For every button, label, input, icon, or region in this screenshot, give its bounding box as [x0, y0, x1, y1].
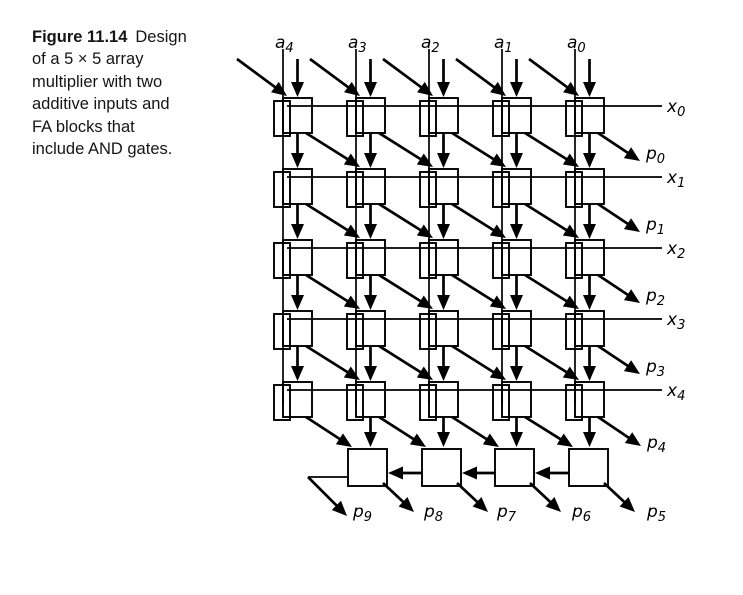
arrow-p5: [604, 483, 635, 512]
label-sub: 1: [504, 41, 512, 56]
label-sub: 4: [677, 389, 685, 404]
adder-cell-0: [348, 449, 387, 486]
arrow-head: [417, 367, 433, 380]
arrow-head: [490, 296, 506, 309]
label-x1: x1: [666, 168, 685, 191]
fa-cell-x0-a4: [274, 98, 312, 136]
down-arrow-x1-a2: [437, 204, 450, 239]
caption-line-6: include AND gates.: [32, 138, 228, 160]
down-arrow-x4-a2: [437, 417, 450, 447]
fa-cell-x4-a0: [566, 382, 604, 420]
arrow-shaft: [379, 346, 424, 374]
fa-box: [356, 169, 385, 204]
arrow-head: [563, 82, 579, 96]
arrow-p2: [598, 275, 640, 303]
top-diagonal-input-col-a1: [456, 59, 506, 96]
arrow-shaft: [379, 417, 417, 441]
down-arrow-x4-a3: [364, 417, 377, 447]
top-diagonal-input-col-a4: [237, 59, 287, 96]
fa-cell-x0-a3: [347, 98, 385, 136]
label-sub: 2: [677, 247, 685, 262]
arrow-shaft: [452, 417, 490, 441]
arrow-head: [583, 224, 596, 239]
arrow-shaft: [452, 346, 497, 374]
label-x4: x4: [666, 381, 685, 404]
fa-box: [575, 98, 604, 133]
label-sub: 3: [358, 41, 366, 56]
down-arrow-x3-a2: [437, 346, 450, 381]
down-arrow-x2-a4: [291, 275, 304, 310]
label-a2: a2: [421, 33, 440, 56]
arrow-shaft: [308, 477, 339, 508]
arrow-head: [437, 432, 450, 447]
down-arrow-x1-a1: [510, 204, 523, 239]
label-base: a: [421, 33, 431, 53]
arrow-head: [417, 225, 433, 238]
fa-cell-x0-a2: [420, 98, 458, 136]
label-p6: p6: [571, 502, 591, 525]
diag-arrow-x4-a3: [379, 417, 426, 447]
diag-arrow-x2-a1: [525, 275, 579, 309]
fa-box: [502, 169, 531, 204]
diag-arrow-x0-a2: [452, 133, 506, 167]
label-sub: 0: [577, 41, 585, 56]
arrow-shaft: [379, 133, 424, 161]
label-base: p: [646, 502, 658, 522]
arrow-head: [364, 295, 377, 310]
fa-cell-x3-a3: [347, 311, 385, 349]
arrow-head: [583, 366, 596, 381]
arrow-head: [563, 154, 579, 167]
fa-cell-x0-a1: [493, 98, 531, 136]
arrow-shaft: [310, 59, 351, 89]
arrow-head: [344, 82, 360, 96]
arrow-head: [344, 154, 360, 167]
fa-cell-x2-a0: [566, 240, 604, 278]
arrow-shaft: [525, 275, 570, 303]
fa-cell-x0-a0: [566, 98, 604, 136]
fa-cell-x1-a0: [566, 169, 604, 207]
arrow-shaft: [383, 483, 406, 504]
fa-cell-x4-a4: [274, 382, 312, 420]
arrow-shaft: [306, 275, 351, 303]
arrow-head: [336, 433, 352, 447]
arrow-shaft: [598, 133, 631, 155]
arrow-shaft: [457, 483, 480, 504]
diag-arrow-x3-a4: [306, 346, 360, 380]
arrow-shaft: [525, 346, 570, 374]
arrow-head: [510, 153, 523, 168]
diag-arrow-x3-a1: [525, 346, 579, 380]
fa-box: [429, 311, 458, 346]
arrow-head: [344, 225, 360, 238]
label-p2: p2: [645, 286, 665, 309]
diag-arrow-x1-a4: [306, 204, 360, 238]
arrow-head: [557, 434, 573, 447]
diag-arrow-x4-a2: [452, 417, 499, 447]
arrow-head: [490, 82, 506, 96]
fa-box: [283, 240, 312, 275]
arrow-head: [410, 433, 426, 447]
adder-cell-2: [495, 449, 534, 486]
down-arrow-x1-a0: [583, 204, 596, 239]
label-sub: 4: [658, 441, 666, 456]
arrow-head: [417, 154, 433, 167]
down-arrow-x1-a3: [364, 204, 377, 239]
top-vertical-input-col-a1: [510, 59, 523, 97]
arrow-head: [483, 433, 499, 447]
arrow-head: [563, 367, 579, 380]
label-p1: p1: [645, 215, 665, 238]
diag-arrow-x3-a3: [379, 346, 433, 380]
diag-arrow-x4-a1: [525, 417, 573, 447]
arrow-shaft: [452, 275, 497, 303]
arrow-shaft: [306, 346, 351, 374]
diag-arrow-x0-a1: [525, 133, 579, 167]
arrow-head: [624, 360, 640, 374]
label-x2: x2: [666, 239, 685, 262]
diagram-geometry: [237, 49, 662, 516]
diag-arrow-x0-a4: [306, 133, 360, 167]
fa-box: [502, 382, 531, 417]
fa-cell-x4-a1: [493, 382, 531, 420]
arrow-shaft: [598, 417, 632, 440]
caption-figure-number: Figure 11.14: [32, 28, 127, 46]
arrow-head: [490, 225, 506, 238]
arrow-shaft: [306, 133, 351, 161]
arrow-head: [291, 224, 304, 239]
down-arrow-x0-a2: [437, 133, 450, 168]
label-p0: p0: [645, 144, 665, 167]
top-diagonal-input-col-a0: [529, 59, 579, 96]
arrow-head: [490, 367, 506, 380]
arrow-head: [490, 154, 506, 167]
arrow-head: [344, 296, 360, 309]
figure-11-14: a4 a3 a2 a1 a0 x0 x1 x2 x3 x4 p0 p1 p2 p…: [0, 0, 743, 595]
label-base: p: [645, 357, 657, 377]
arrow-shaft: [529, 59, 570, 89]
diag-arrow-x0-a3: [379, 133, 433, 167]
arrow-head: [510, 224, 523, 239]
arrow-head: [291, 82, 304, 97]
down-arrow-x0-a4: [291, 133, 304, 168]
arrow-shaft: [452, 204, 497, 232]
label-sub: 2: [657, 294, 665, 309]
arrow-shaft: [379, 204, 424, 232]
arrow-head: [364, 82, 377, 97]
label-sub: 3: [657, 365, 665, 380]
label-base: p: [646, 433, 658, 453]
label-p4: p4: [646, 433, 666, 456]
diag-arrow-x1-a3: [379, 204, 433, 238]
arrow-head: [583, 432, 596, 447]
label-base: p: [645, 286, 657, 306]
arrow-shaft: [525, 204, 570, 232]
down-arrow-x2-a1: [510, 275, 523, 310]
arrow-p4: [598, 417, 641, 446]
label-base: p: [496, 502, 508, 522]
figure-caption: Figure 11.14Design of a 5 × 5 array mult…: [32, 26, 228, 160]
fa-box: [356, 240, 385, 275]
fa-box: [429, 169, 458, 204]
arrow-shaft: [598, 275, 631, 297]
arrow-p9: [308, 477, 347, 516]
arrow-head: [563, 225, 579, 238]
fa-box: [575, 382, 604, 417]
arrow-shaft: [604, 483, 627, 504]
label-a3: a3: [348, 33, 367, 56]
adder-carry-arrow-1: [388, 467, 422, 480]
fa-box: [429, 98, 458, 133]
label-a1: a1: [494, 33, 513, 56]
arrow-head: [625, 432, 641, 446]
label-x3: x3: [666, 310, 685, 333]
label-base: p: [645, 144, 657, 164]
top-vertical-input-col-a3: [364, 59, 377, 97]
label-base: a: [567, 33, 577, 53]
fa-box: [502, 98, 531, 133]
top-vertical-input-col-a0: [583, 59, 596, 97]
caption-line-5: FA blocks that: [32, 116, 228, 138]
arrow-shaft: [598, 204, 631, 226]
arrow-shaft: [452, 133, 497, 161]
fa-box: [283, 382, 312, 417]
arrow-head: [364, 432, 377, 447]
down-arrow-x2-a3: [364, 275, 377, 310]
fa-box: [283, 311, 312, 346]
caption-text-start: Design: [135, 28, 186, 46]
arrow-head: [510, 432, 523, 447]
arrow-head: [364, 153, 377, 168]
arrow-shaft: [306, 417, 343, 441]
fa-box: [429, 240, 458, 275]
label-sub: 3: [677, 318, 685, 333]
adder-carry-arrow-2: [462, 467, 495, 480]
down-arrow-x4-a0: [583, 417, 596, 447]
label-a0: a0: [567, 33, 586, 56]
top-diagonal-input-col-a3: [310, 59, 360, 96]
label-sub: 4: [285, 41, 293, 56]
label-sub: 8: [435, 510, 443, 525]
fa-box: [575, 240, 604, 275]
label-base: p: [352, 502, 364, 522]
label-p8: p8: [423, 502, 443, 525]
arrow-head: [364, 366, 377, 381]
caption-line-4: additive inputs and: [32, 93, 228, 115]
arrow-head: [291, 153, 304, 168]
down-arrow-x2-a2: [437, 275, 450, 310]
fa-cell-x1-a3: [347, 169, 385, 207]
fa-cell-x3-a0: [566, 311, 604, 349]
top-vertical-input-col-a2: [437, 59, 450, 97]
arrow-head: [437, 153, 450, 168]
label-a4: a4: [275, 33, 294, 56]
top-vertical-input-col-a4: [291, 59, 304, 97]
arrow-p1: [598, 204, 640, 232]
arrow-head: [291, 366, 304, 381]
arrow-head: [583, 82, 596, 97]
arrow-shaft: [383, 59, 424, 89]
arrow-head: [271, 82, 287, 96]
adder-cell-3: [569, 449, 608, 486]
diag-arrow-x2-a3: [379, 275, 433, 309]
label-base: p: [645, 215, 657, 235]
down-arrow-x3-a0: [583, 346, 596, 381]
down-arrow-x1-a4: [291, 204, 304, 239]
arrow-head: [510, 295, 523, 310]
arrow-head: [624, 289, 640, 303]
adder-carry-arrow-3: [535, 467, 569, 480]
arrow-head: [462, 467, 477, 480]
arrow-head: [364, 224, 377, 239]
fa-cell-x1-a2: [420, 169, 458, 207]
label-p7: p7: [496, 502, 517, 525]
label-x0: x0: [666, 97, 685, 120]
top-diagonal-input-col-a2: [383, 59, 433, 96]
arrow-head: [583, 153, 596, 168]
label-sub: 1: [677, 176, 685, 191]
fa-box: [575, 169, 604, 204]
arrow-shaft: [379, 275, 424, 303]
diag-arrow-x1-a2: [452, 204, 506, 238]
arrow-head: [417, 82, 433, 96]
caption-line-2: of a 5 × 5 array: [32, 48, 228, 70]
diag-arrow-x3-a2: [452, 346, 506, 380]
fa-box: [502, 311, 531, 346]
arrow-head: [388, 467, 403, 480]
arrow-head: [344, 367, 360, 380]
fa-cell-x2-a3: [347, 240, 385, 278]
fa-cell-x3-a4: [274, 311, 312, 349]
down-arrow-x2-a0: [583, 275, 596, 310]
arrow-shaft: [530, 483, 553, 504]
fa-cell-x4-a2: [420, 382, 458, 420]
label-base: a: [348, 33, 358, 53]
label-sub: 0: [657, 152, 665, 167]
fa-box: [356, 98, 385, 133]
down-arrow-x3-a4: [291, 346, 304, 381]
fa-cell-x3-a1: [493, 311, 531, 349]
caption-line-3: multiplier with two: [32, 71, 228, 93]
arrow-shaft: [306, 204, 351, 232]
label-base: a: [494, 33, 504, 53]
label-p3: p3: [645, 357, 665, 380]
down-arrow-x0-a3: [364, 133, 377, 168]
arrow-p8: [383, 483, 414, 512]
arrow-head: [437, 295, 450, 310]
arrow-head: [624, 147, 640, 161]
label-p9: p9: [352, 502, 372, 525]
arrow-head: [583, 295, 596, 310]
label-p5: p5: [646, 502, 666, 525]
label-sub: 1: [657, 223, 665, 238]
arrow-head: [417, 296, 433, 309]
arrow-p7: [457, 483, 488, 512]
arrow-head: [563, 296, 579, 309]
down-arrow-x0-a0: [583, 133, 596, 168]
label-sub: 2: [431, 41, 439, 56]
diag-arrow-x1-a1: [525, 204, 579, 238]
arrow-shaft: [525, 417, 564, 441]
label-sub: 0: [677, 105, 685, 120]
arrow-shaft: [525, 133, 570, 161]
diag-arrow-x2-a4: [306, 275, 360, 309]
arrow-head: [437, 82, 450, 97]
arrow-head: [624, 218, 640, 232]
fa-box: [575, 311, 604, 346]
arrow-head: [510, 82, 523, 97]
label-sub: 6: [583, 510, 591, 525]
fa-box: [283, 98, 312, 133]
label-base: p: [571, 502, 583, 522]
fa-box: [356, 382, 385, 417]
arrow-shaft: [456, 59, 497, 89]
fa-box: [283, 169, 312, 204]
fa-cell-x2-a4: [274, 240, 312, 278]
diag-arrow-x4-a4: [306, 417, 352, 447]
arrow-head: [291, 295, 304, 310]
fa-box: [429, 382, 458, 417]
arrow-p0: [598, 133, 640, 161]
caption-line-1: Figure 11.14Design: [32, 26, 228, 48]
fa-cell-x4-a3: [347, 382, 385, 420]
fa-cell-x2-a1: [493, 240, 531, 278]
fa-box: [502, 240, 531, 275]
down-arrow-x3-a1: [510, 346, 523, 381]
arrow-shaft: [237, 59, 278, 89]
label-sub: 5: [658, 510, 666, 525]
fa-cell-x1-a1: [493, 169, 531, 207]
down-arrow-x0-a1: [510, 133, 523, 168]
label-base: a: [275, 33, 285, 53]
diag-arrow-x2-a2: [452, 275, 506, 309]
down-arrow-x3-a3: [364, 346, 377, 381]
arrow-shaft: [598, 346, 631, 368]
label-sub: 7: [508, 510, 517, 525]
arrow-p3: [598, 346, 640, 374]
fa-cell-x3-a2: [420, 311, 458, 349]
fa-cell-x2-a2: [420, 240, 458, 278]
adder-cell-1: [422, 449, 461, 486]
arrow-head: [437, 366, 450, 381]
arrow-head: [437, 224, 450, 239]
fa-cell-x1-a4: [274, 169, 312, 207]
arrow-p6: [530, 483, 561, 512]
label-sub: 9: [364, 510, 372, 525]
arrow-head: [535, 467, 550, 480]
label-base: p: [423, 502, 435, 522]
down-arrow-x4-a1: [510, 417, 523, 447]
fa-box: [356, 311, 385, 346]
arrow-head: [510, 366, 523, 381]
